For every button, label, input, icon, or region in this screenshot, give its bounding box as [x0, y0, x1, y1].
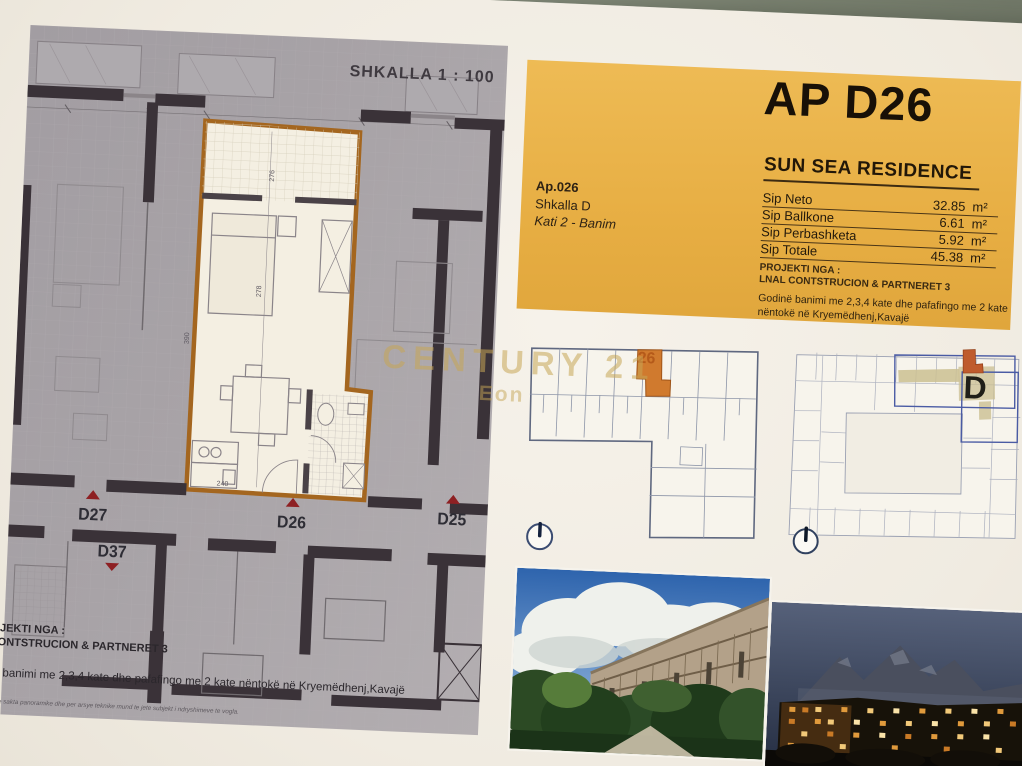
brochure-page: 278 276 390 240	[0, 0, 1022, 766]
unit-label-d37: D37	[97, 541, 127, 561]
dim-label: 278	[256, 285, 264, 297]
building-photo-night	[765, 602, 1022, 766]
site-plan-unit-label: 26	[637, 350, 656, 368]
staircase-label: Shkalla D	[535, 196, 591, 213]
unit-label-d27: D27	[78, 505, 108, 525]
apartment-info-panel: Ap.026 Shkalla D Kati 2 - Banim AP D26 S…	[517, 60, 1021, 330]
residence-name: SUN SEA RESIDENCE	[763, 154, 980, 190]
site-plan-block-label: D	[963, 369, 988, 406]
apartment-title: AP D26	[763, 70, 935, 132]
north-arrow-icon	[527, 523, 553, 550]
photographed-sheet: 278 276 390 240	[0, 0, 1022, 766]
unit-label-d26: D26	[277, 512, 307, 532]
site-plan-block: 26	[511, 332, 772, 561]
apartment-code: Ap.026	[536, 178, 579, 195]
building-photo-day	[509, 568, 770, 760]
floor-use-label: Kati 2 - Banim	[534, 213, 616, 232]
unit-label-d25: D25	[437, 509, 467, 529]
dim-label: 390	[184, 332, 192, 344]
dim-label: 240	[216, 481, 228, 489]
project-company: LNAL CONTSTRUCION & PARTNERET 3	[759, 274, 951, 293]
site-plan-complex: D	[778, 340, 1022, 564]
area-table: Sip Neto 32.85 m² Sip Ballkone 6.61 m² S…	[760, 190, 999, 268]
floor-plan-panel: 278 276 390 240	[0, 25, 508, 735]
floor-plan-drawing: 278 276 390 240	[0, 25, 508, 735]
dim-label: 276	[269, 170, 277, 182]
building-description: Godinë banimi me 2,3,4 kate dhe pafafing…	[757, 292, 1010, 330]
